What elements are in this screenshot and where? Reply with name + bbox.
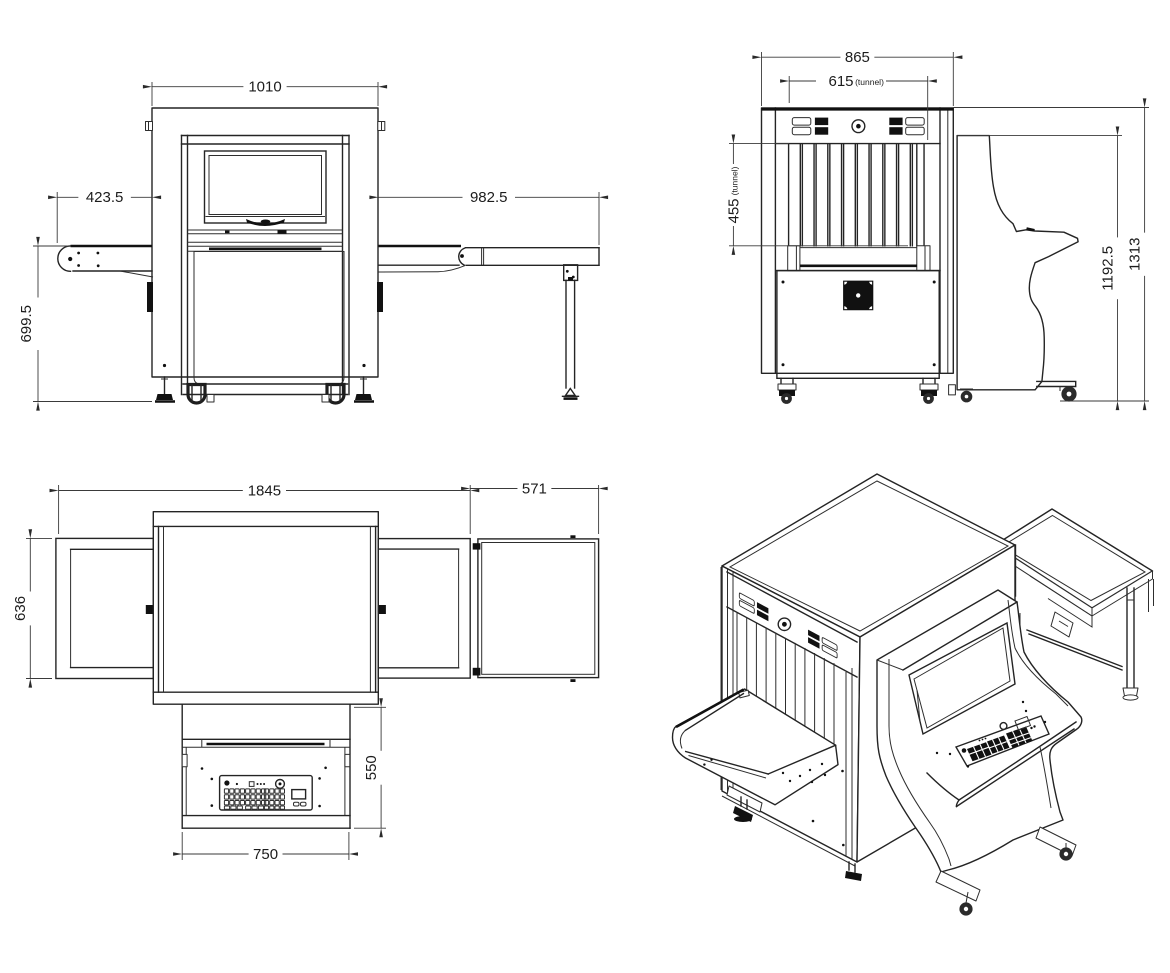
svg-text:1313: 1313: [1127, 238, 1144, 271]
svg-text:(tunnel): (tunnel): [730, 166, 740, 195]
svg-text:423.5: 423.5: [86, 189, 124, 206]
svg-text:865: 865: [845, 49, 870, 66]
svg-text:1845: 1845: [248, 482, 281, 499]
svg-text:636: 636: [12, 596, 29, 621]
svg-text:550: 550: [363, 755, 380, 780]
svg-text:750: 750: [253, 846, 278, 863]
svg-text:699.5: 699.5: [18, 305, 35, 343]
svg-text:(tunnel): (tunnel): [855, 77, 884, 87]
svg-text:615: 615: [828, 73, 853, 90]
svg-text:455: 455: [726, 198, 743, 223]
svg-text:982.5: 982.5: [470, 189, 508, 206]
svg-text:1192.5: 1192.5: [1100, 246, 1117, 291]
svg-text:571: 571: [522, 480, 547, 497]
svg-text:1010: 1010: [248, 79, 281, 96]
